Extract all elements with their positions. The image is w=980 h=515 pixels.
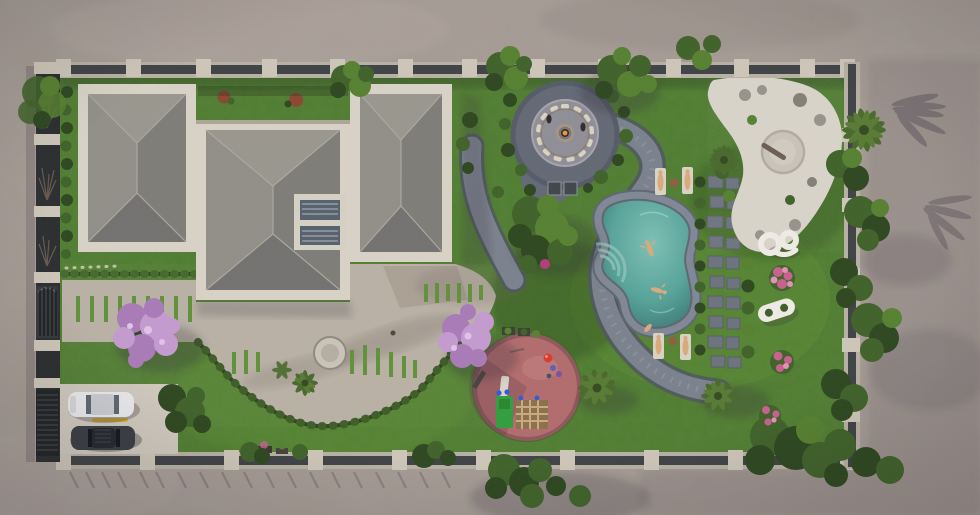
render-canvas — [0, 0, 980, 515]
vignette — [0, 0, 980, 515]
aerial-villa-render — [0, 0, 980, 515]
